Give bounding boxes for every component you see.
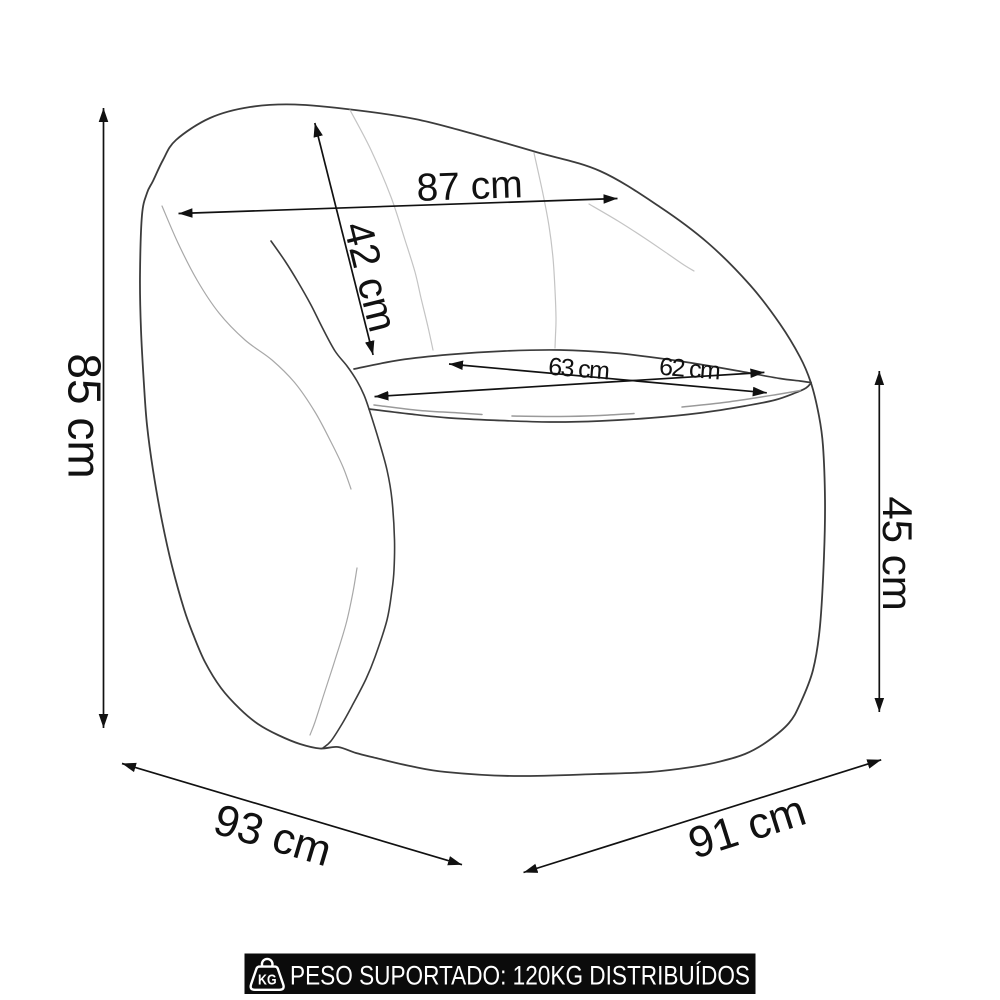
svg-text:63 cm: 63 cm: [547, 353, 610, 386]
svg-text:PESO SUPORTADO: 120KG DISTRIBU: PESO SUPORTADO: 120KG DISTRIBUÍDOS: [290, 961, 750, 991]
svg-text:62 cm: 62 cm: [658, 353, 721, 386]
svg-text:45 cm: 45 cm: [874, 496, 921, 610]
svg-text:87 cm: 87 cm: [416, 163, 524, 210]
svg-text:85 cm: 85 cm: [59, 353, 111, 478]
svg-text:KG: KG: [258, 973, 277, 989]
